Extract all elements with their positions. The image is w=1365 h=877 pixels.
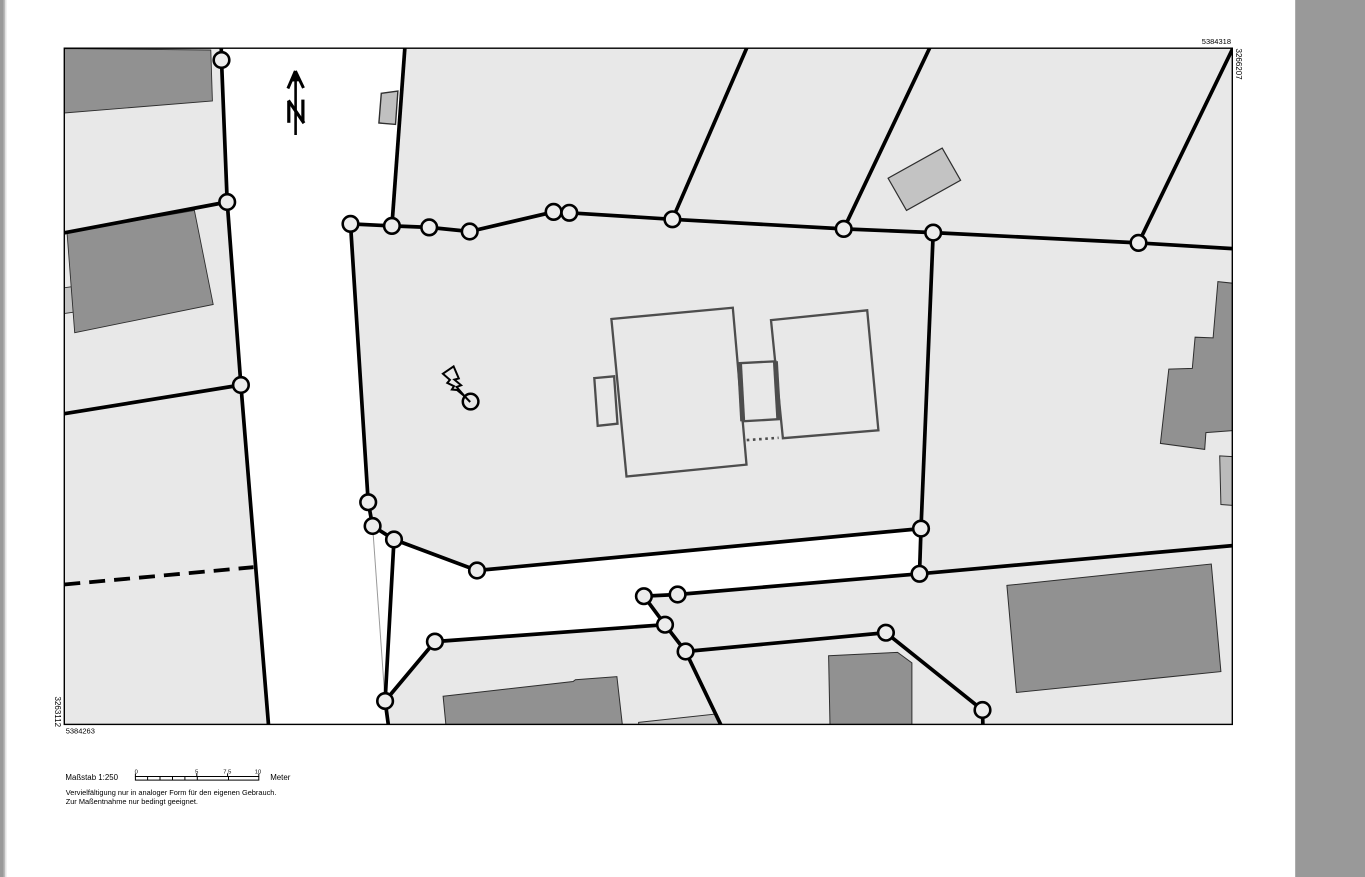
- svg-text:Zur Maßentnahme nur bedingt ge: Zur Maßentnahme nur bedingt geeignet.: [66, 797, 198, 806]
- svg-text:5: 5: [195, 769, 198, 775]
- svg-text:Meter: Meter: [270, 773, 291, 782]
- svg-text:5384318: 5384318: [1202, 37, 1231, 46]
- svg-text:Vervielfältigung nur in analog: Vervielfältigung nur in analoger Form fü…: [66, 788, 277, 797]
- svg-text:0: 0: [135, 769, 138, 775]
- svg-text:7.5: 7.5: [223, 769, 231, 775]
- svg-text:Maßstab 1:250: Maßstab 1:250: [65, 773, 118, 782]
- svg-text:3263112: 3263112: [53, 697, 62, 728]
- svg-text:5384263: 5384263: [66, 727, 95, 736]
- svg-text:10: 10: [255, 769, 261, 775]
- svg-text:3266207: 3266207: [1234, 49, 1243, 81]
